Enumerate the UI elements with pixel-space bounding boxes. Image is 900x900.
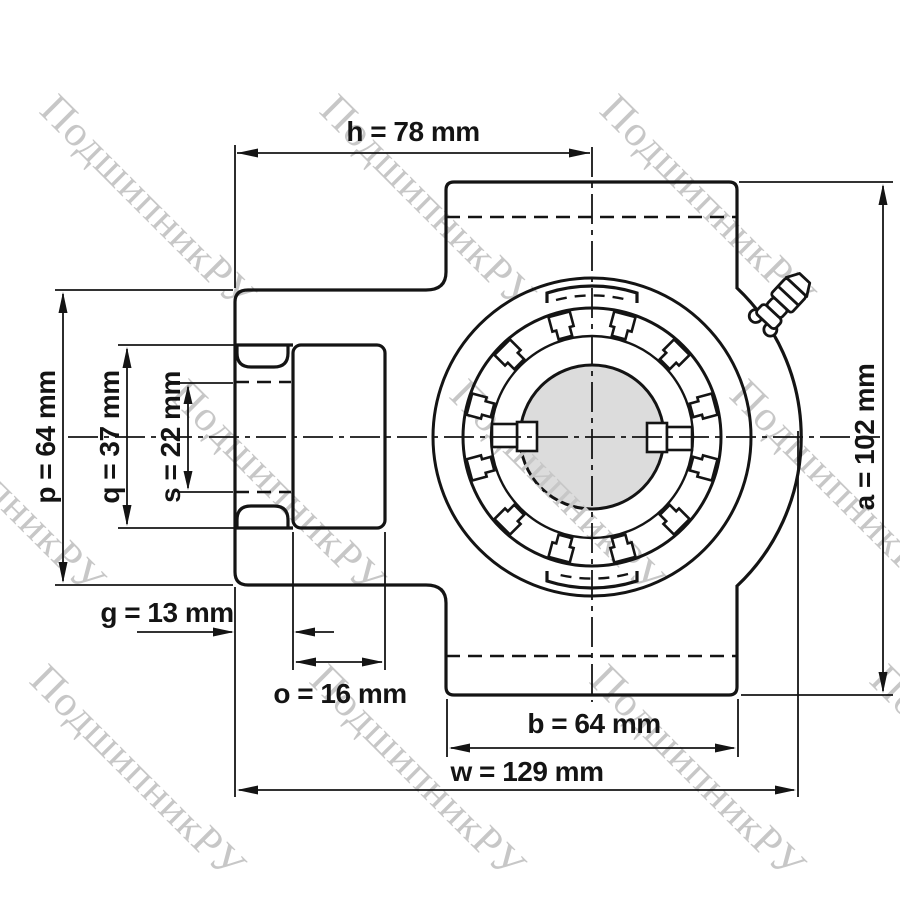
dim-label-s: s = 22 mm <box>155 371 186 503</box>
dim-label-b: b = 64 mm <box>527 708 660 739</box>
dim-label-q: q = 37 mm <box>94 370 125 503</box>
collar-tab <box>549 534 576 563</box>
collar-key-outer <box>667 427 692 450</box>
watermark-text: ПодшипникРУ <box>861 656 900 890</box>
watermark-text: ПодшипникРУ <box>581 656 815 890</box>
watermark-text: ПодшипникРУ <box>161 371 395 605</box>
collar-tab <box>494 502 527 535</box>
collar-tab <box>494 339 527 372</box>
collar-tab <box>689 453 718 480</box>
dim-label-p: p = 64 mm <box>30 370 61 503</box>
dim-label-g: g = 13 mm <box>100 597 233 628</box>
bearing-unit-drawing: ПодшипникРУ ПодшипникРУ ПодшипникРУ Подш… <box>0 0 900 900</box>
slot-top-pocket <box>237 345 288 367</box>
collar-key-outer <box>492 424 517 447</box>
watermark-text: ПодшипникРУ <box>21 656 255 890</box>
collar-tab <box>608 311 635 340</box>
dim-label-w: w = 129 mm <box>450 756 604 787</box>
dim-label-h: h = 78 mm <box>346 116 479 147</box>
watermark-text: ПодшипникРУ <box>31 86 265 320</box>
collar-tab <box>549 311 576 340</box>
technical-drawing-canvas: ПодшипникРУ ПодшипникРУ ПодшипникРУ Подш… <box>0 0 900 900</box>
collar-tab <box>466 453 495 480</box>
collar-tab <box>689 394 718 421</box>
collar-tab <box>657 502 690 535</box>
dimension-b: b = 64 mm <box>447 699 738 757</box>
dim-label-o: o = 16 mm <box>273 678 406 709</box>
collar-tab <box>657 339 690 372</box>
dim-label-a: a = 102 mm <box>849 364 880 511</box>
dimension-w: w = 129 mm <box>237 431 798 797</box>
